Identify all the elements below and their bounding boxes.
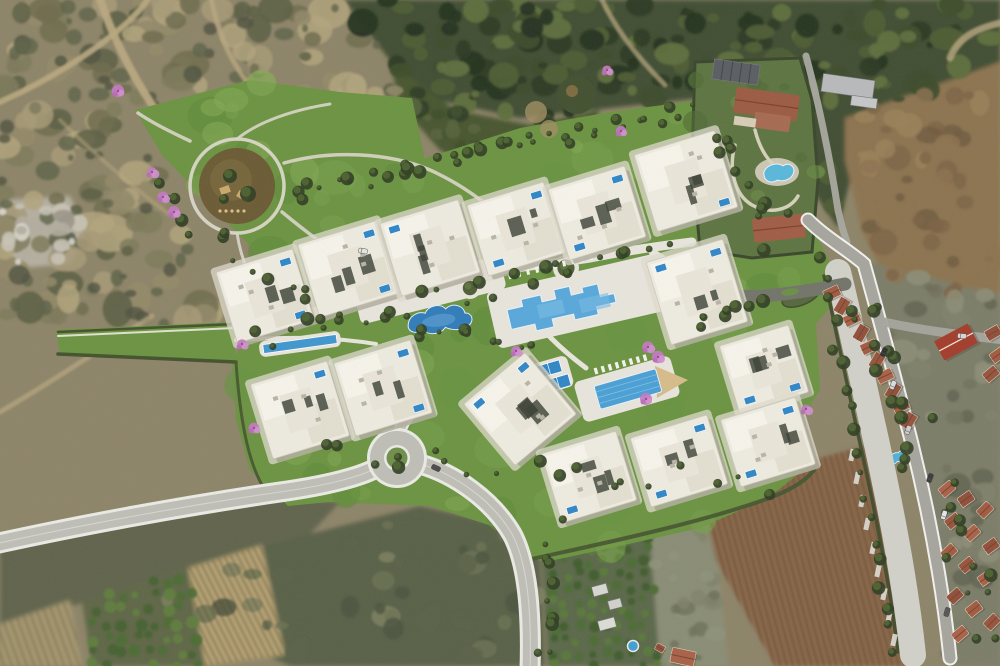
aerial-masterplan-image (0, 0, 1000, 666)
photo-grain-overlay (0, 0, 1000, 666)
masterplan-canvas (0, 0, 1000, 666)
